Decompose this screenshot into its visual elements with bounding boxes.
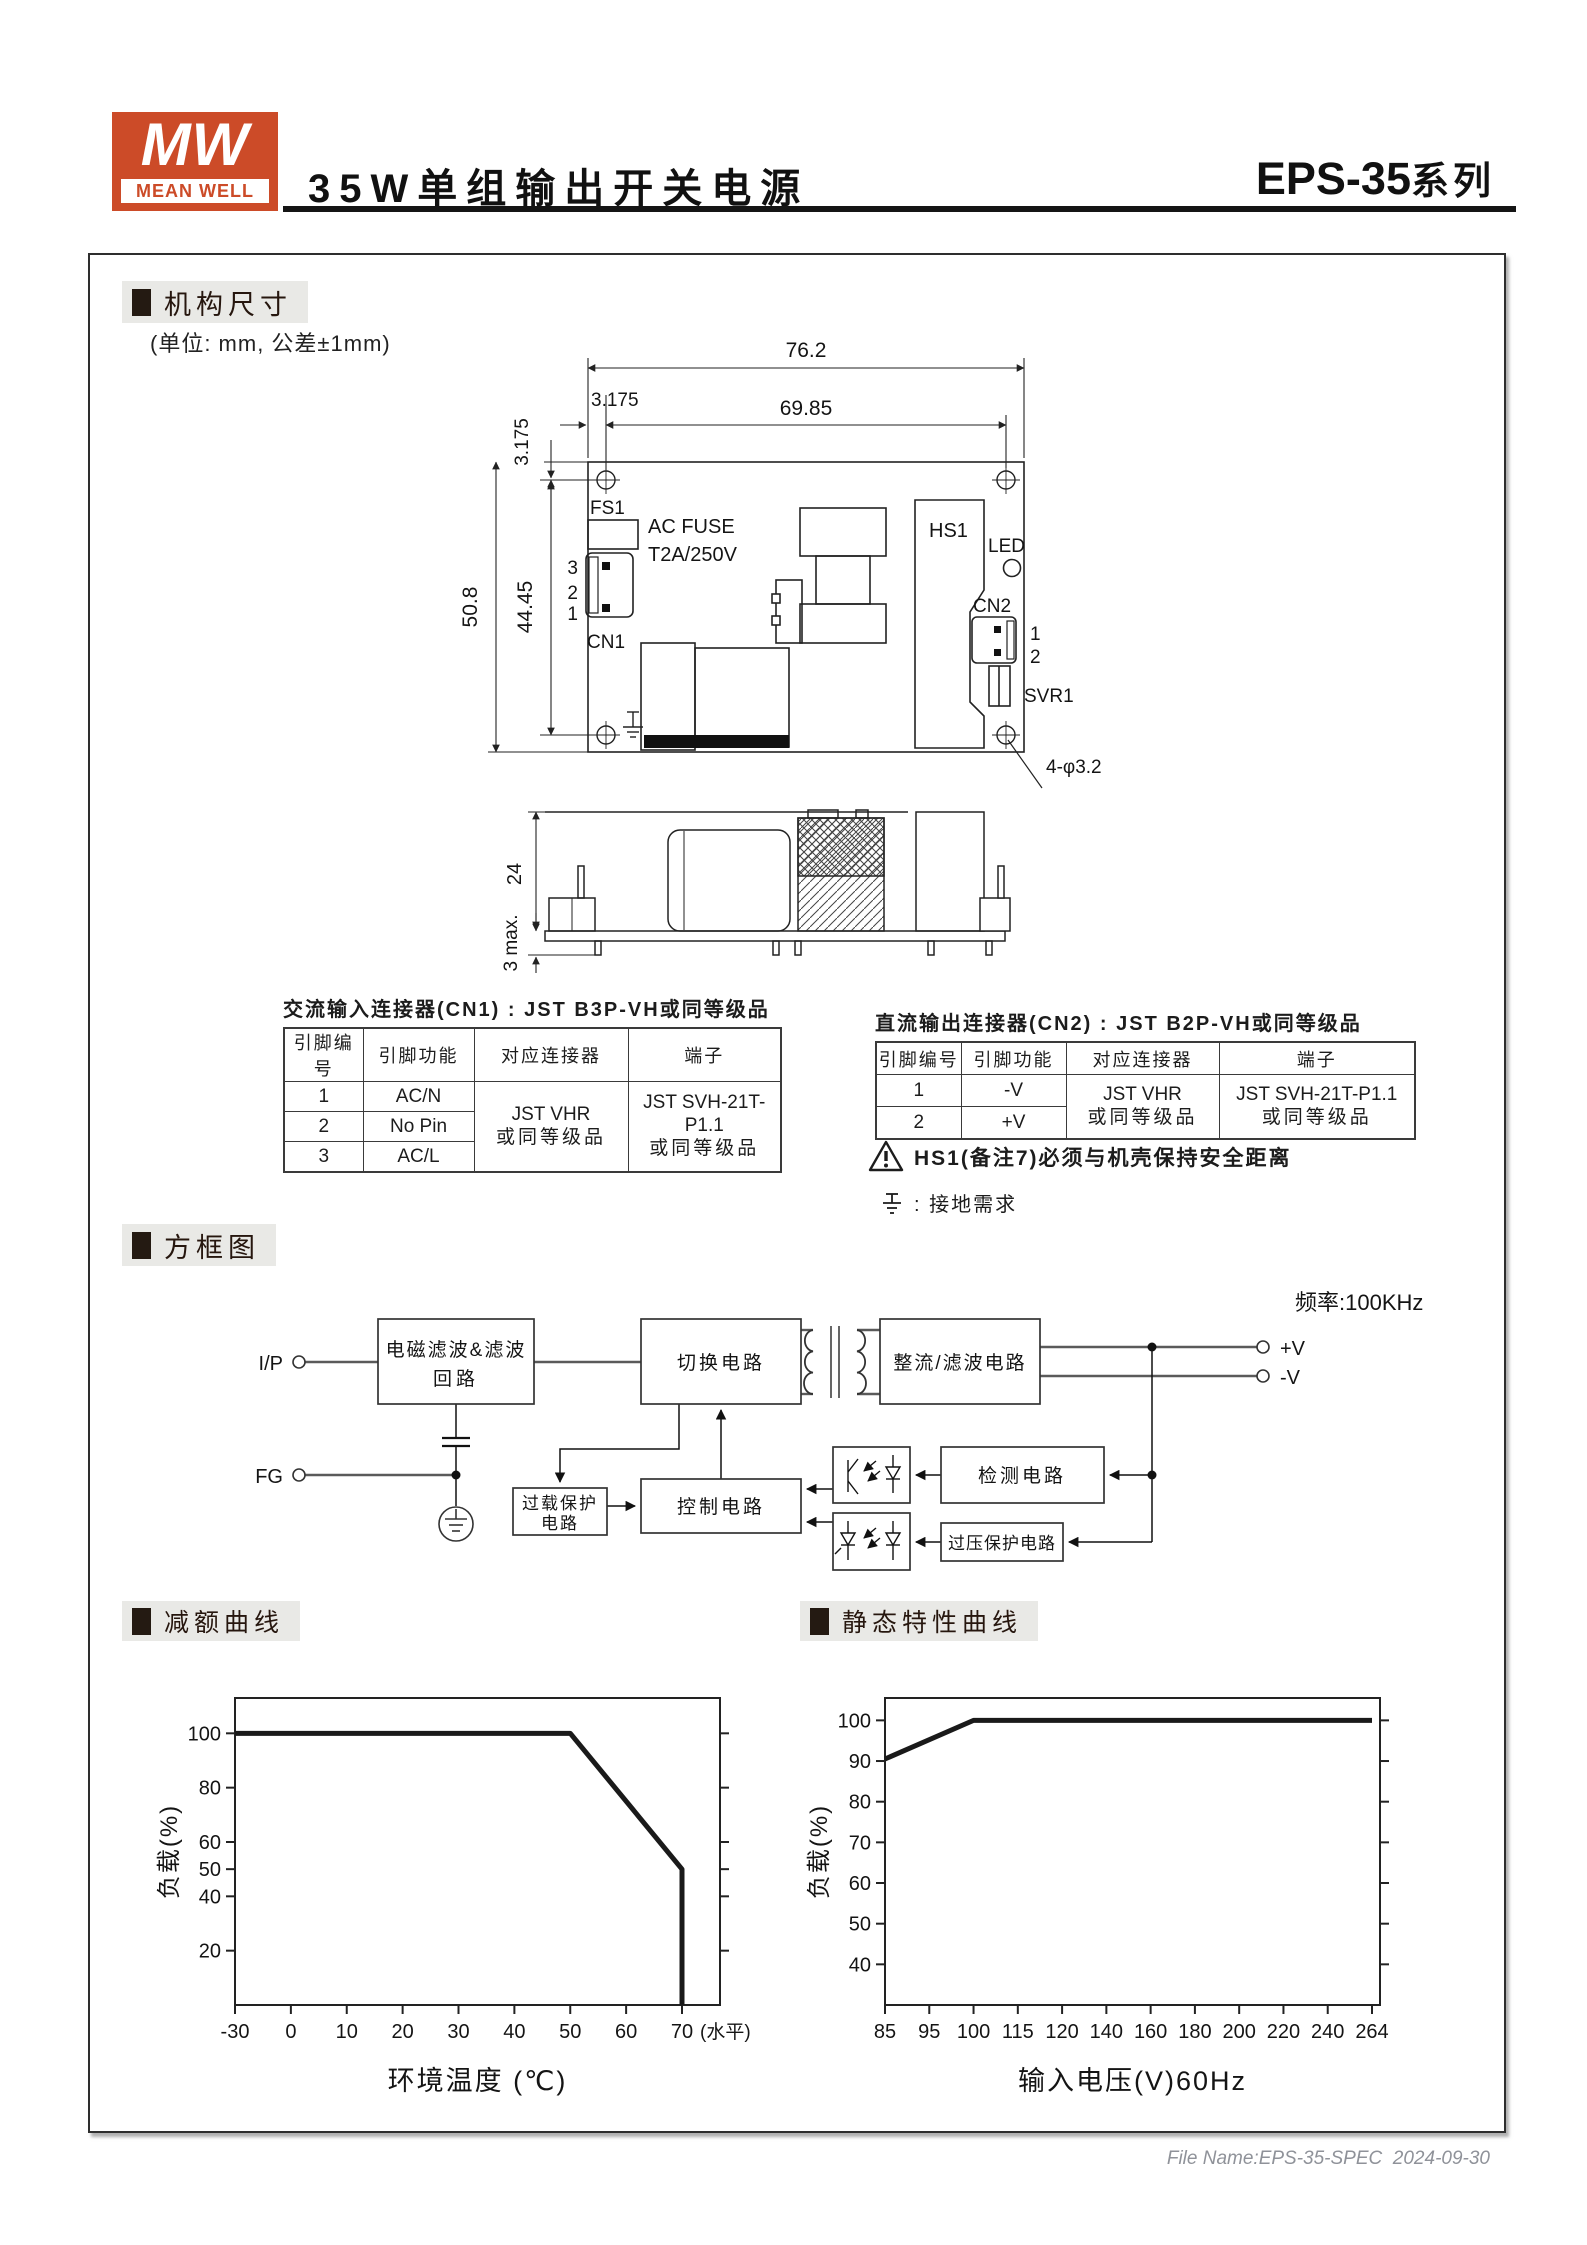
x-tick-label: 85: [874, 2021, 896, 2043]
y-tick-label: 90: [849, 1751, 871, 1773]
y-tick-label: 100: [838, 1710, 871, 1732]
x-tick-label: 115: [1002, 2021, 1034, 2043]
mechanical-drawing: 76.2 3.175 69.85 3.175 50.8 44.45 FS1 AC…: [88, 253, 1502, 1010]
terminal-line2: 或同等级品: [1220, 1107, 1415, 1130]
v-plus-label: +V: [1280, 1338, 1306, 1360]
x-tick-label: 0: [285, 2021, 296, 2043]
datasheet-page: MW MEAN WELL 35W单组输出开关电源 EPS-35系列 机构尺寸 (…: [0, 0, 1587, 2245]
x-tick-label: 160: [1134, 2021, 1167, 2043]
y-tick-label: 50: [849, 1914, 871, 1936]
x-tick-label: 50: [559, 2021, 581, 2043]
logo-band: MEAN WELL: [121, 179, 269, 203]
ovp-label: 过压保护电路: [948, 1534, 1056, 1553]
fg-terminal-label: FG: [255, 1466, 283, 1488]
pcb-top-view: [586, 462, 1042, 788]
cn1-pin3-label: 3: [567, 558, 578, 579]
y-axis-title: 负载(%): [806, 1804, 833, 1899]
fuse-label-line2: T2A/250V: [648, 544, 738, 566]
dim-height-label: 50.8: [459, 587, 482, 628]
x-tick-label: 60: [615, 2021, 637, 2043]
derating-curve-chart: 2040506080100-30010203040506070(水平)环境温度 …: [140, 1645, 800, 2115]
transformer-symbol: [804, 1326, 866, 1398]
rectifier-label: 整流/滤波电路: [893, 1352, 1026, 1374]
cn1-header-row: 引脚编号 引脚功能 对应连接器 端子: [284, 1028, 781, 1082]
section-label: 减额曲线: [164, 1603, 284, 1639]
emi-filter-label-line1: 电磁滤波&滤波: [386, 1339, 527, 1361]
olp-label-line1: 过载保护: [522, 1494, 598, 1513]
x-tick-label: 264: [1355, 2021, 1388, 2043]
x-axis-title: 环境温度 (℃): [388, 2066, 568, 2096]
func-cell: -V: [961, 1075, 1066, 1107]
earth-ground-symbol: [439, 1507, 473, 1541]
table-row: 1 AC/N JST VHR 或同等级品 JST SVH-21T-P1.1 或同…: [284, 1082, 781, 1112]
data-curve: [885, 1720, 1372, 1759]
y-tick-label: 50: [199, 1859, 221, 1881]
terminal-line1: JST SVH-21T-P1.1: [629, 1092, 781, 1138]
col-header-terminal: 端子: [628, 1028, 781, 1082]
terminal-cell: JST SVH-21T-P1.1 或同等级品: [1219, 1075, 1415, 1140]
y-tick-label: 40: [849, 1954, 871, 1976]
cn2-pin2-label: 2: [1030, 647, 1041, 668]
input-terminal-label: I/P: [259, 1353, 283, 1375]
pcb-side-view: [545, 810, 1010, 955]
col-header-pin: 引脚编号: [876, 1042, 961, 1075]
connector-line2: 或同等级品: [1067, 1107, 1219, 1130]
y-tick-label: 70: [849, 1832, 871, 1854]
dim-offset-v-label: 3.175: [512, 418, 533, 466]
plot-area: [885, 1698, 1380, 2005]
mounting-holes-label: 4-φ3.2: [1046, 757, 1102, 778]
section-square-icon: [132, 1608, 151, 1635]
x-tick-label: 120: [1045, 2021, 1078, 2043]
footer-filename: File Name:EPS-35-SPEC 2024-09-30: [1167, 2148, 1490, 2170]
section-square-icon: [810, 1608, 829, 1635]
frequency-label: 频率:100KHz: [1295, 1290, 1423, 1315]
control-label: 控制电路: [677, 1496, 765, 1518]
x-tick-label: 100: [957, 2021, 990, 2043]
y-tick-label: 100: [188, 1723, 221, 1745]
logo-mw-text: MW: [112, 110, 278, 180]
connector-cell: JST VHR 或同等级品: [474, 1082, 628, 1173]
col-header-func: 引脚功能: [961, 1042, 1066, 1075]
x-tick-label: -30: [221, 2021, 250, 2043]
dim-width-label: 76.2: [786, 339, 827, 362]
cn2-table: 引脚编号 引脚功能 对应连接器 端子 1 -V JST VHR 或同等级品 JS…: [875, 1041, 1416, 1140]
connector-line1: JST VHR: [475, 1104, 628, 1127]
col-header-connector: 对应连接器: [474, 1028, 628, 1082]
fuse-label-line1: AC FUSE: [648, 516, 735, 538]
connector-line1: JST VHR: [1067, 1084, 1219, 1107]
hs1-label: HS1: [929, 520, 968, 542]
olp-label-line2: 电路: [541, 1514, 579, 1533]
pin-cell: 1: [876, 1075, 961, 1107]
func-cell: AC/L: [363, 1142, 474, 1173]
dim-pins-label: 3 max.: [501, 914, 522, 971]
pin-cell: 2: [876, 1107, 961, 1140]
switching-label: 切换电路: [677, 1352, 765, 1374]
dim-inner-label: 69.85: [780, 397, 833, 420]
dim-depth-label: 24: [504, 863, 526, 885]
table-row: 1 -V JST VHR 或同等级品 JST SVH-21T-P1.1 或同等级…: [876, 1075, 1415, 1107]
cn1-pin1-label: 1: [567, 604, 578, 625]
meanwell-logo: MW MEAN WELL: [112, 112, 278, 211]
ground-note: : 接地需求: [880, 1188, 1017, 1217]
transformer-outline: [772, 508, 886, 643]
col-header-func: 引脚功能: [363, 1028, 474, 1082]
data-curve: [235, 1733, 682, 2005]
section-derating-title: 减额曲线: [122, 1601, 300, 1641]
x-tick-label: 180: [1178, 2021, 1211, 2043]
detection-label: 检测电路: [978, 1465, 1066, 1487]
cn1-table: 引脚编号 引脚功能 对应连接器 端子 1 AC/N JST VHR 或同等级品 …: [283, 1027, 782, 1173]
cn1-pin2-label: 2: [567, 583, 578, 604]
x-tick-label: 95: [918, 2021, 940, 2043]
terminal-line1: JST SVH-21T-P1.1: [1220, 1084, 1415, 1107]
earth-ground-icon: [880, 1190, 904, 1216]
x-tick-label: 30: [447, 2021, 469, 2043]
pin-cell: 3: [284, 1142, 363, 1173]
ground-note-text: : 接地需求: [914, 1188, 1017, 1217]
v-minus-label: -V: [1280, 1367, 1301, 1389]
y-tick-label: 20: [199, 1941, 221, 1963]
section-block-diagram-title: 方框图: [122, 1224, 276, 1266]
x-tick-label: 140: [1090, 2021, 1123, 2043]
cn1-table-block: 交流输入连接器(CN1) : JST B3P-VH或同等级品 引脚编号 引脚功能…: [283, 993, 782, 1173]
col-header-pin: 引脚编号: [284, 1028, 363, 1082]
cn2-header-row: 引脚编号 引脚功能 对应连接器 端子: [876, 1042, 1415, 1075]
x-axis-title: 输入电压(V)60Hz: [1018, 2066, 1247, 2096]
cn2-table-title: 直流输出连接器(CN2) : JST B2P-VH或同等级品: [875, 1007, 1416, 1036]
y-tick-label: 60: [849, 1873, 871, 1895]
col-header-connector: 对应连接器: [1066, 1042, 1219, 1075]
x-tick-label: 40: [503, 2021, 525, 2043]
hs1-warning-text: HS1(备注7)必须与机壳保持安全距离: [914, 1142, 1292, 1172]
section-label: 静态特性曲线: [842, 1603, 1022, 1639]
func-cell: +V: [961, 1107, 1066, 1140]
series-suffix: 系列: [1411, 161, 1495, 203]
plot-area: [235, 1698, 720, 2005]
cn1-label: CN1: [587, 632, 625, 653]
cn2-label: CN2: [973, 596, 1011, 617]
side-view-dimensions: [528, 812, 600, 973]
y-tick-label: 60: [199, 1832, 221, 1854]
led-label: LED: [988, 536, 1025, 557]
dim-inner-v-label: 44.45: [514, 581, 537, 634]
section-square-icon: [132, 1232, 151, 1259]
section-static-curve-title: 静态特性曲线: [800, 1601, 1038, 1641]
dimension-lines: [488, 358, 1024, 752]
dim-offset-h-label: 3.175: [591, 390, 639, 411]
cn2-table-block: 直流输出连接器(CN2) : JST B2P-VH或同等级品 引脚编号 引脚功能…: [875, 1007, 1416, 1140]
header-divider: [283, 206, 1516, 212]
led-outline: [1004, 560, 1021, 577]
pin-cell: 1: [284, 1082, 363, 1112]
x-tick-label: 70: [671, 2021, 693, 2043]
x-tick-label: 10: [336, 2021, 358, 2043]
y-axis-title: 负载(%): [156, 1804, 183, 1899]
fuse-fs1-outline: [588, 520, 638, 549]
x-axis-note: (水平): [700, 2021, 751, 2043]
static-characteristic-chart: 4050607080901008595100115120140160180200…: [800, 1645, 1500, 2115]
y-tick-label: 80: [199, 1778, 221, 1800]
func-cell: AC/N: [363, 1082, 474, 1112]
logo-brand-name: MEAN WELL: [121, 179, 269, 204]
cn2-pin1-label: 1: [1030, 624, 1041, 645]
col-header-terminal: 端子: [1219, 1042, 1415, 1075]
series-code: EPS-35: [1256, 153, 1411, 204]
series-title: EPS-35系列: [1256, 150, 1495, 205]
section-label: 方框图: [164, 1226, 260, 1265]
y-tick-label: 40: [199, 1886, 221, 1908]
connector-line2: 或同等级品: [475, 1127, 628, 1150]
warning-icon: [868, 1140, 904, 1173]
block-diagram: 频率:100KHz I/P FG 电磁滤波&滤波 回路 切换电路 整流/滤波电路…: [88, 1280, 1502, 1590]
x-tick-label: 20: [392, 2021, 414, 2043]
pin-cell: 2: [284, 1112, 363, 1142]
connector-cell: JST VHR 或同等级品: [1066, 1075, 1219, 1140]
func-cell: No Pin: [363, 1112, 474, 1142]
terminal-cell: JST SVH-21T-P1.1 或同等级品: [628, 1082, 781, 1173]
y-tick-label: 80: [849, 1792, 871, 1814]
svr1-label: SVR1: [1024, 686, 1074, 707]
fs1-label: FS1: [590, 498, 625, 519]
emi-filter-label-line2: 回路: [433, 1368, 479, 1390]
hs1-warning-note: HS1(备注7)必须与机壳保持安全距离: [868, 1140, 1292, 1173]
ground-symbol: [623, 712, 643, 737]
terminal-line2: 或同等级品: [629, 1138, 781, 1161]
x-tick-label: 200: [1222, 2021, 1255, 2043]
x-tick-label: 220: [1267, 2021, 1300, 2043]
x-tick-label: 240: [1311, 2021, 1344, 2043]
cn1-table-title: 交流输入连接器(CN1) : JST B3P-VH或同等级品: [283, 993, 782, 1022]
